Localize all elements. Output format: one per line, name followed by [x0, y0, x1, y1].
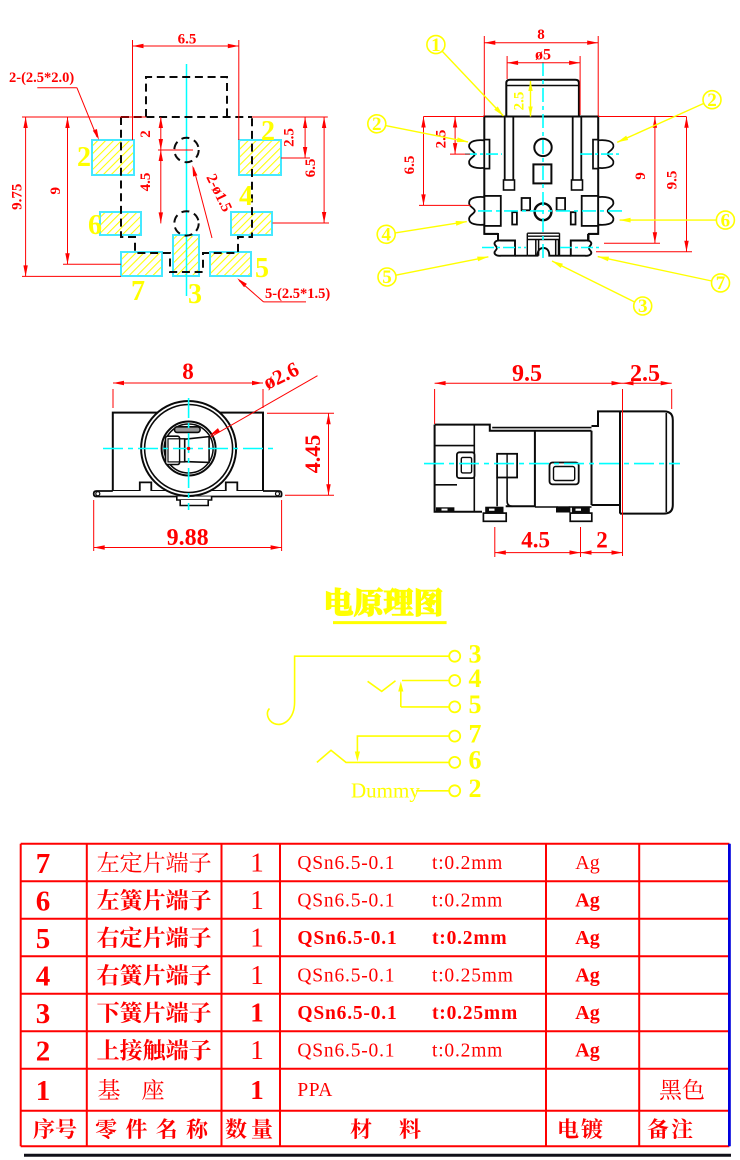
svg-text:6.5: 6.5	[303, 159, 319, 178]
svg-text:1: 1	[250, 1075, 264, 1105]
svg-text:2.5: 2.5	[512, 92, 528, 111]
svg-text:2.5: 2.5	[282, 128, 298, 147]
svg-text:5: 5	[36, 923, 51, 955]
svg-text:9.5: 9.5	[665, 171, 681, 190]
svg-text:1: 1	[250, 998, 264, 1028]
svg-text:QSn6.5-0.1: QSn6.5-0.1	[297, 853, 395, 874]
svg-text:Ag: Ag	[575, 965, 599, 987]
svg-text:4: 4	[381, 225, 391, 246]
svg-text:7: 7	[36, 848, 51, 880]
svg-text:9.5: 9.5	[512, 361, 542, 387]
svg-text:2.5: 2.5	[630, 361, 660, 387]
svg-text:t:0.2mm: t:0.2mm	[432, 891, 503, 912]
svg-text:2: 2	[36, 1036, 51, 1068]
svg-text:9: 9	[48, 187, 64, 195]
svg-text:4.45: 4.45	[300, 435, 325, 474]
svg-text:QSn6.5-0.1: QSn6.5-0.1	[297, 966, 395, 987]
svg-text:5: 5	[255, 253, 269, 284]
svg-text:2: 2	[469, 774, 482, 803]
svg-text:6.5: 6.5	[178, 32, 197, 48]
svg-text:3: 3	[188, 279, 202, 310]
svg-text:9.88: 9.88	[167, 525, 209, 551]
svg-text:4.5: 4.5	[521, 528, 550, 553]
svg-text:3: 3	[36, 998, 51, 1030]
svg-text:5-(2.5*1.5): 5-(2.5*1.5)	[265, 286, 330, 302]
svg-text:2: 2	[596, 528, 608, 553]
svg-text:QSn6.5-0.1: QSn6.5-0.1	[297, 1003, 397, 1024]
svg-text:Ag: Ag	[575, 890, 599, 912]
svg-text:4.5: 4.5	[138, 173, 154, 192]
svg-text:2: 2	[261, 116, 275, 147]
svg-text:6: 6	[88, 210, 102, 241]
svg-text:Ag: Ag	[575, 852, 599, 874]
svg-text:2: 2	[77, 142, 91, 173]
svg-text:QSn6.5-0.1: QSn6.5-0.1	[297, 891, 395, 912]
svg-text:1: 1	[36, 1075, 51, 1107]
svg-text:1: 1	[250, 1035, 264, 1065]
svg-text:5: 5	[469, 690, 482, 719]
svg-text:5: 5	[382, 267, 392, 288]
svg-text:6: 6	[721, 210, 731, 231]
svg-text:7: 7	[469, 719, 482, 748]
svg-text:2: 2	[707, 90, 717, 111]
svg-text:8: 8	[182, 359, 194, 384]
svg-text:8: 8	[537, 27, 545, 43]
svg-text:QSn6.5-0.1: QSn6.5-0.1	[297, 1041, 395, 1062]
svg-text:4: 4	[239, 181, 253, 212]
svg-text:4: 4	[36, 961, 51, 993]
svg-text:Ag: Ag	[575, 1002, 599, 1024]
svg-text:9: 9	[633, 172, 649, 180]
svg-text:1: 1	[431, 35, 441, 56]
svg-text:2: 2	[372, 114, 382, 135]
svg-text:6.5: 6.5	[402, 156, 418, 175]
svg-text:Ag: Ag	[575, 1040, 599, 1062]
svg-text:ø5: ø5	[535, 47, 551, 64]
svg-text:t:0.2mm: t:0.2mm	[432, 1041, 503, 1062]
svg-text:7: 7	[716, 273, 726, 294]
svg-text:t:0.25mm: t:0.25mm	[432, 966, 514, 987]
svg-text:3: 3	[638, 296, 648, 317]
svg-text:1: 1	[250, 885, 264, 915]
svg-text:1: 1	[250, 923, 264, 953]
svg-text:2.5: 2.5	[434, 130, 450, 149]
svg-text:9.75: 9.75	[10, 184, 26, 210]
svg-text:Dummy: Dummy	[351, 779, 420, 803]
svg-text:2: 2	[138, 130, 154, 138]
svg-text:1: 1	[250, 848, 264, 878]
svg-text:PPA: PPA	[297, 1080, 332, 1101]
svg-text:6: 6	[469, 746, 482, 775]
svg-text:t:0.25mm: t:0.25mm	[432, 1003, 518, 1024]
svg-text:4: 4	[469, 664, 482, 693]
svg-text:7: 7	[131, 276, 145, 307]
svg-text:Ag: Ag	[575, 927, 599, 949]
svg-text:t:0.2mm: t:0.2mm	[432, 853, 503, 874]
svg-text:1: 1	[250, 960, 264, 990]
svg-text:2-(2.5*2.0): 2-(2.5*2.0)	[9, 70, 74, 86]
svg-text:6: 6	[36, 886, 51, 918]
svg-text:t:0.2mm: t:0.2mm	[432, 928, 507, 949]
svg-text:QSn6.5-0.1: QSn6.5-0.1	[297, 928, 397, 949]
